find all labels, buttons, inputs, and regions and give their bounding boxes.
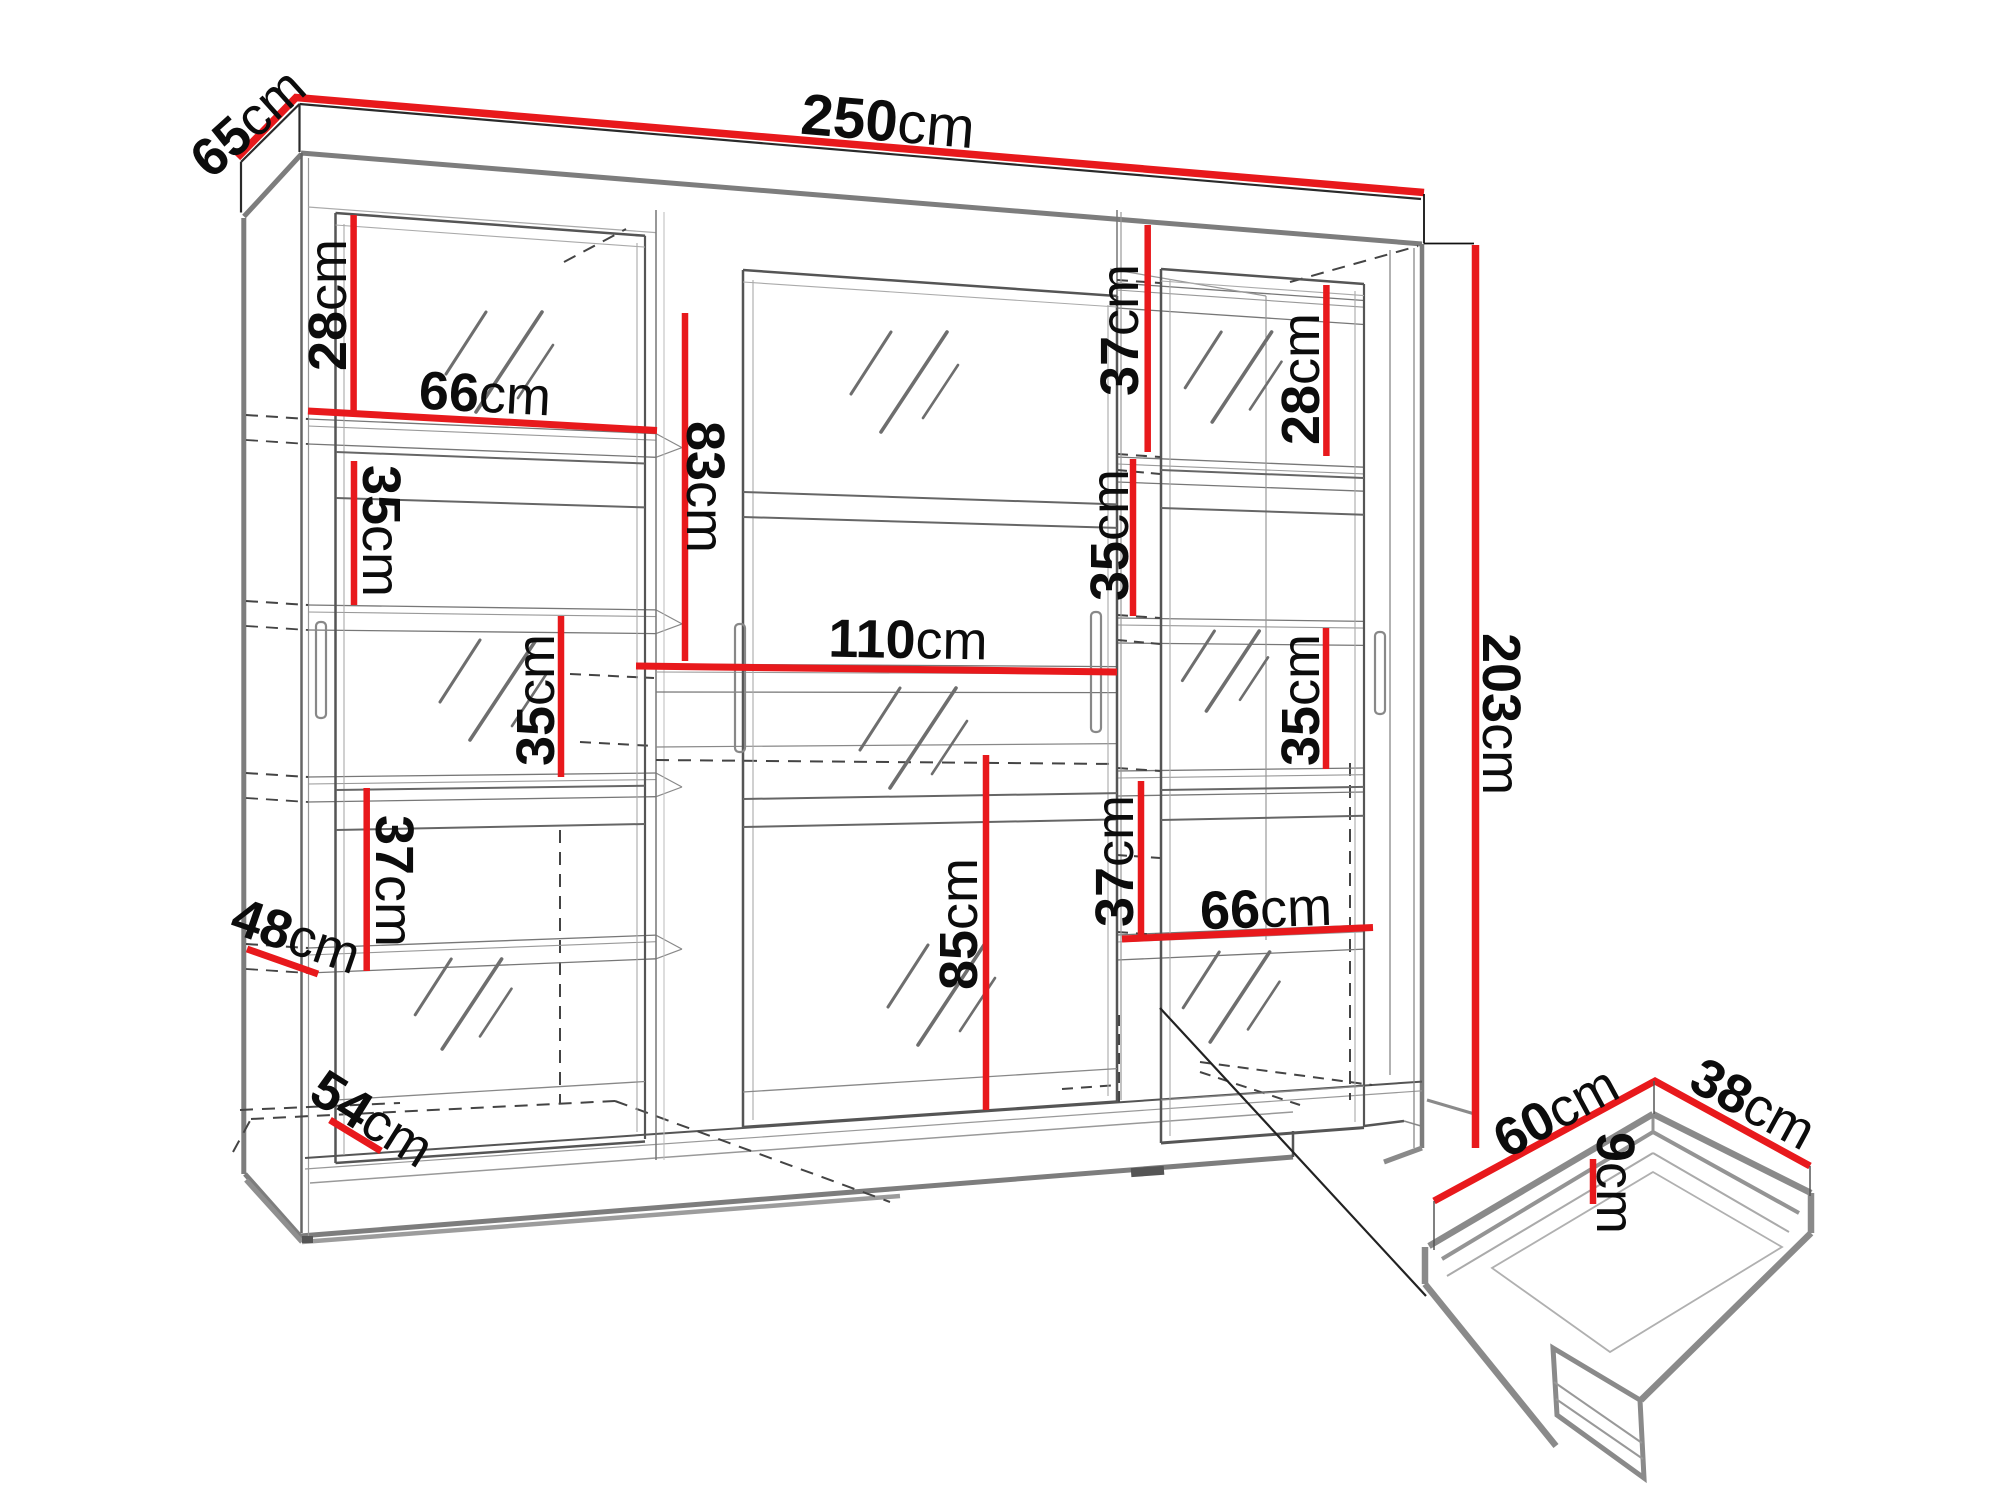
svg-text:37cm: 37cm (1090, 264, 1150, 396)
svg-text:66cm: 66cm (1199, 877, 1333, 942)
svg-text:203cm: 203cm (1471, 633, 1531, 795)
svg-text:28cm: 28cm (1271, 313, 1331, 445)
svg-text:37cm: 37cm (364, 815, 424, 947)
svg-text:37cm: 37cm (1085, 795, 1145, 927)
svg-text:35cm: 35cm (506, 634, 566, 766)
svg-text:35cm: 35cm (1080, 469, 1140, 601)
svg-text:110cm: 110cm (828, 609, 988, 672)
svg-text:35cm: 35cm (1271, 634, 1331, 766)
svg-text:83cm: 83cm (675, 421, 735, 553)
svg-text:35cm: 35cm (351, 465, 411, 597)
svg-text:9cm: 9cm (1585, 1132, 1645, 1234)
svg-text:66cm: 66cm (417, 361, 552, 428)
svg-text:28cm: 28cm (298, 239, 358, 371)
svg-text:85cm: 85cm (929, 858, 989, 990)
